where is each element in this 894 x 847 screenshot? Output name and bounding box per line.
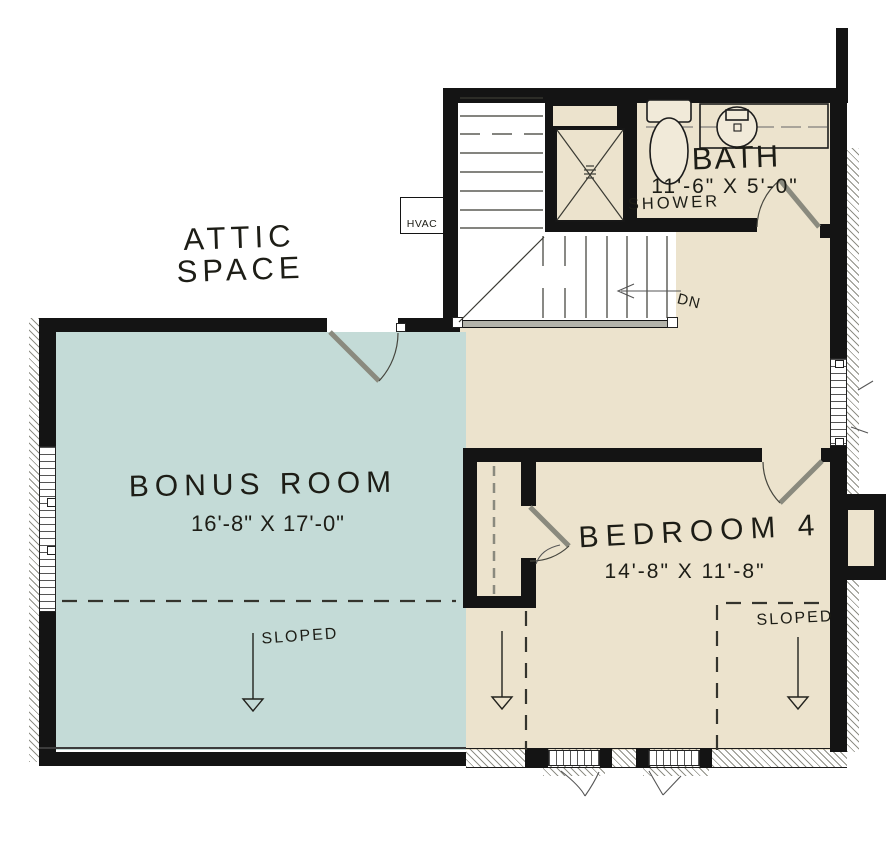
bedroom4-dims: 14'-8" X 11'-8": [565, 560, 805, 584]
wall-bonus-bottom: [39, 752, 466, 766]
wall-bedroom-top: [466, 448, 762, 462]
hvac-box: HVAC: [400, 197, 444, 234]
wall-top: [443, 88, 848, 103]
shower-niche: [553, 106, 617, 126]
wall-closet-left: [463, 448, 477, 608]
stairs-treads-upper: [460, 98, 543, 228]
hatch-left-exterior: [29, 318, 39, 762]
wall-bedroom-top-stub: [821, 448, 834, 462]
wall-bath-door-stub: [820, 224, 847, 238]
window-mullion: [835, 438, 844, 446]
hvac-label: HVAC: [407, 218, 437, 233]
window-mullion: [47, 498, 56, 507]
shower-label: SHOWER: [625, 192, 724, 214]
bonus-room-name: BONUS ROOM: [118, 465, 409, 504]
window-mullion: [47, 546, 56, 555]
window-sill-hatch: [543, 768, 605, 776]
attic-space-label: ATTIC SPACE: [139, 219, 341, 290]
bedroom-window-east: [830, 358, 847, 446]
stair-handrail: [461, 320, 671, 328]
wall-right-lower: [830, 446, 847, 752]
bath-name: BATH: [670, 138, 801, 179]
wall-bonus-top-left: [39, 318, 327, 332]
bump-out-interior: [848, 510, 874, 566]
wall-closet-bottom: [463, 596, 536, 608]
window-sill-hatch: [643, 768, 709, 776]
wall-closet-right-top: [521, 462, 536, 506]
window-jamb: [525, 748, 548, 768]
newel-post: [452, 317, 463, 328]
wall-stairwell-left: [443, 88, 458, 332]
wall-left-upper: [39, 318, 56, 446]
stairwell: [458, 232, 676, 320]
bonus-window-west: [39, 446, 56, 612]
wall-top-right-stub: [836, 28, 848, 88]
bedroom-window-south-2: [648, 750, 700, 766]
shower-pan: [555, 128, 625, 222]
window-jamb: [700, 748, 712, 768]
window-mullion: [835, 360, 844, 368]
attic-line2: SPACE: [140, 251, 341, 290]
door-jamb-block: [396, 323, 406, 332]
hatch-right-exterior: [847, 148, 859, 752]
wall-bonus-top-right: [398, 318, 460, 332]
bedroom-window-south-1: [548, 750, 600, 766]
bonus-room-floor: [56, 332, 466, 750]
bonus-bottom-thin-line: [39, 747, 466, 749]
newel-post: [667, 317, 678, 328]
window-jamb: [600, 748, 612, 768]
bonus-room-dims: 16'-8" X 17'-0": [143, 511, 393, 537]
floor-plan: HVAC: [0, 0, 894, 847]
wall-left-lower: [39, 612, 56, 752]
